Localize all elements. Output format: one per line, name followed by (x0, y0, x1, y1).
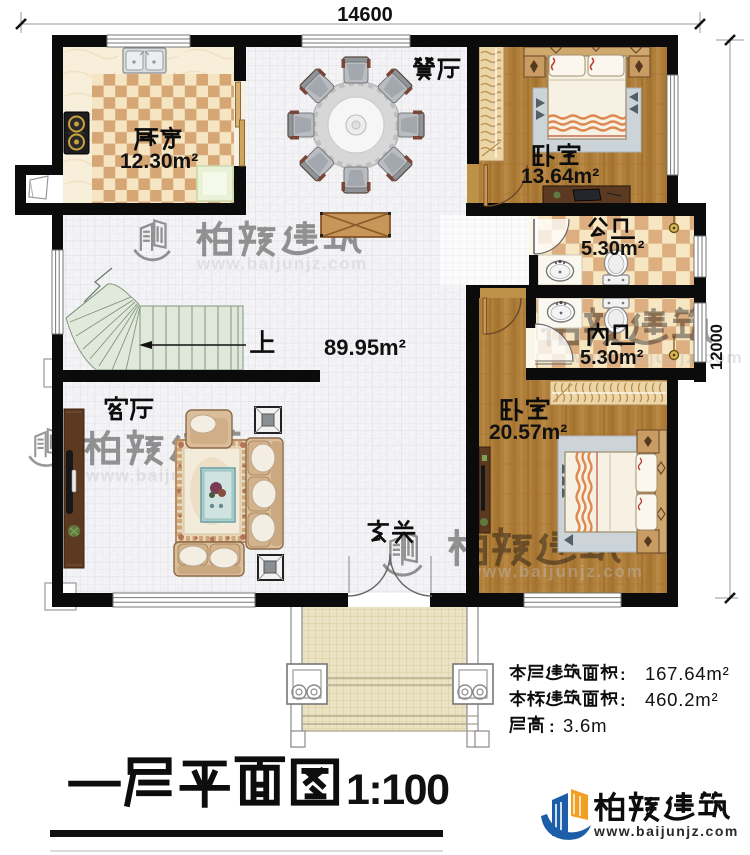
svg-text:3.6m: 3.6m (563, 715, 607, 736)
svg-text:13.64m²: 13.64m² (521, 165, 599, 188)
svg-text:12.30m²: 12.30m² (120, 150, 198, 173)
svg-text:www.baijunjz.com: www.baijunjz.com (467, 562, 644, 581)
svg-text:5.30m²: 5.30m² (580, 347, 644, 369)
svg-text:20.57m²: 20.57m² (489, 421, 567, 444)
svg-text:www.baijunjz.com: www.baijunjz.com (196, 254, 368, 273)
svg-text::: : (549, 717, 555, 736)
svg-text:www.baijunjz.com: www.baijunjz.com (593, 823, 739, 839)
svg-text:89.95m²: 89.95m² (324, 335, 406, 360)
svg-text:1:100: 1:100 (346, 766, 449, 814)
svg-text:167.64m²: 167.64m² (645, 663, 730, 684)
svg-text:12000: 12000 (708, 324, 726, 370)
svg-text::: : (620, 691, 626, 710)
svg-text:14600: 14600 (337, 4, 393, 26)
svg-text:5.30m²: 5.30m² (581, 238, 645, 260)
svg-text::: : (620, 665, 626, 684)
svg-text:460.2m²: 460.2m² (645, 689, 718, 710)
